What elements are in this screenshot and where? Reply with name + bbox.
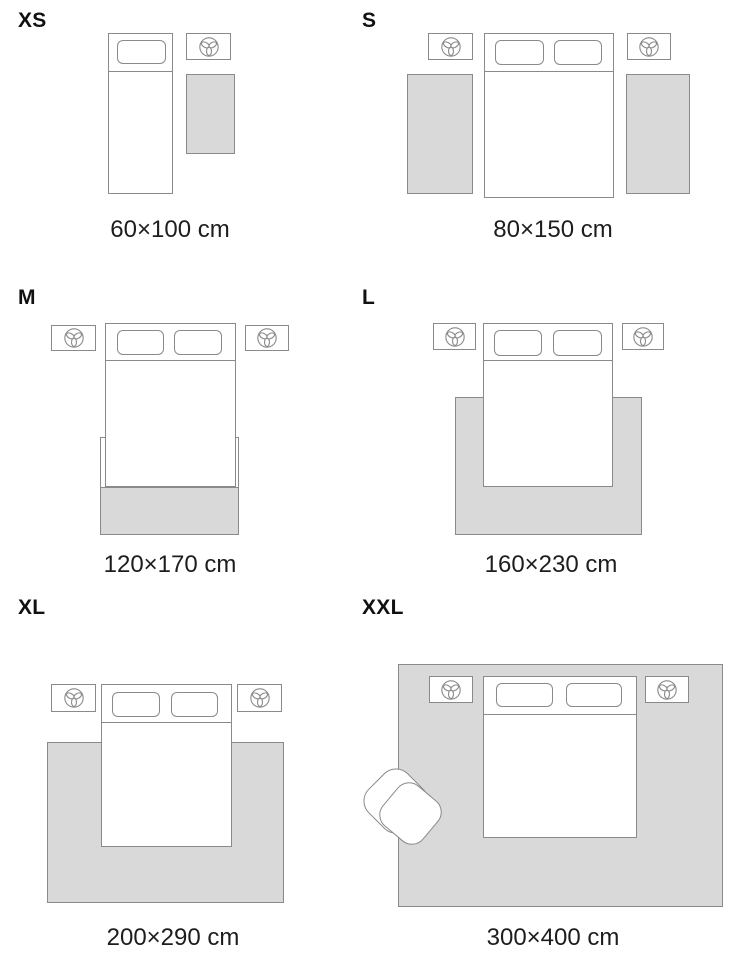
dimension-caption: 300×400 cm [487,925,620,951]
bed-headboard-divider [483,714,637,715]
pillow [566,683,622,707]
plant-icon [656,679,678,701]
rug-size-guide: XS 60×100 cm S [0,0,740,960]
panel-xxl: XXL [0,0,740,960]
nightstand [645,676,689,703]
nightstand [429,676,473,703]
pillow [496,683,553,707]
plant-icon [440,679,462,701]
